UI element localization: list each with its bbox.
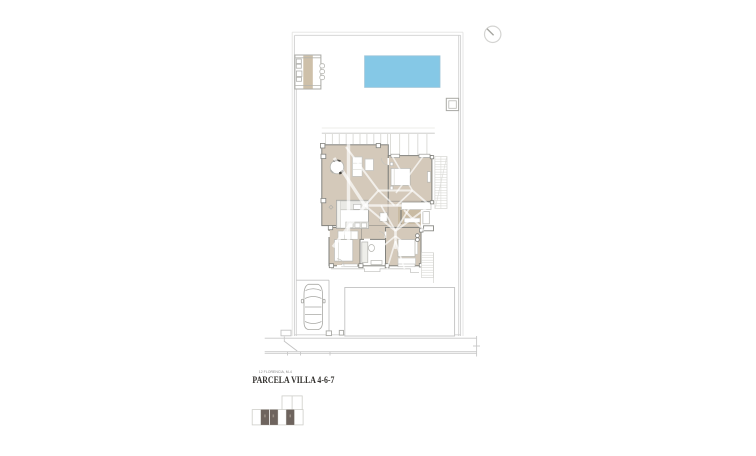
svg-text:12 FLORENCIA, M-4: 12 FLORENCIA, M-4 <box>259 369 293 374</box>
svg-text:PARCELA VILLA 4-6-7: PARCELA VILLA 4-6-7 <box>252 376 334 386</box>
